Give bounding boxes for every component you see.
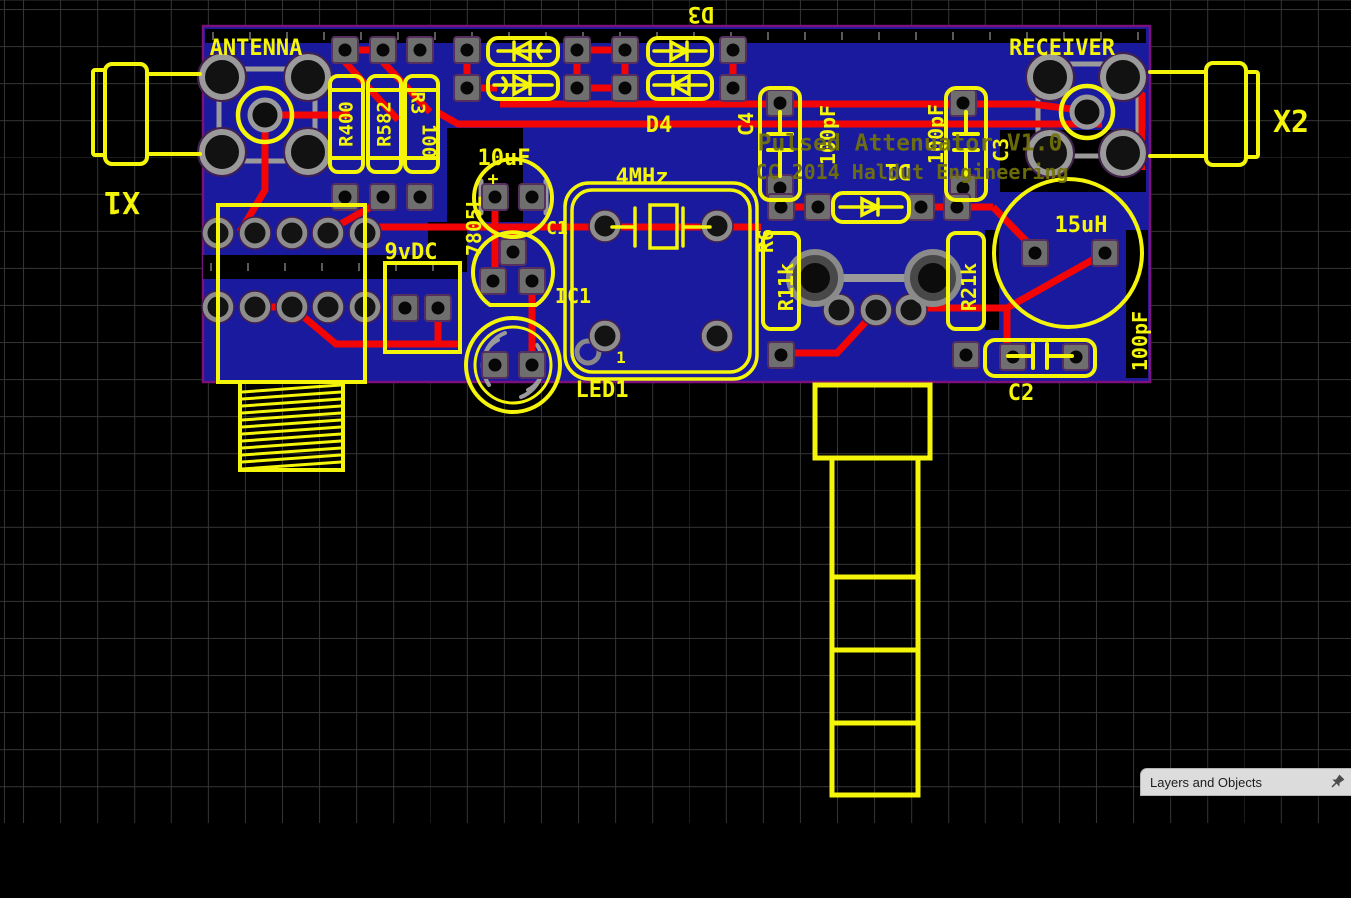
pushpin-icon[interactable] bbox=[1328, 773, 1346, 791]
layers-and-objects-panel[interactable]: Layers and Objects bbox=[1140, 768, 1351, 796]
jack-connector-outline bbox=[815, 385, 930, 795]
panel-title: Layers and Objects bbox=[1141, 775, 1328, 790]
x1-connector-outline bbox=[93, 64, 200, 164]
x2-connector-outline bbox=[1150, 63, 1258, 165]
pcb-canvas[interactable] bbox=[0, 0, 1351, 898]
hatched-connector bbox=[240, 382, 343, 470]
pcb-editor-window: ANTENNARECEIVERX1X2D3D4C4100pF100pFC315u… bbox=[0, 0, 1351, 898]
